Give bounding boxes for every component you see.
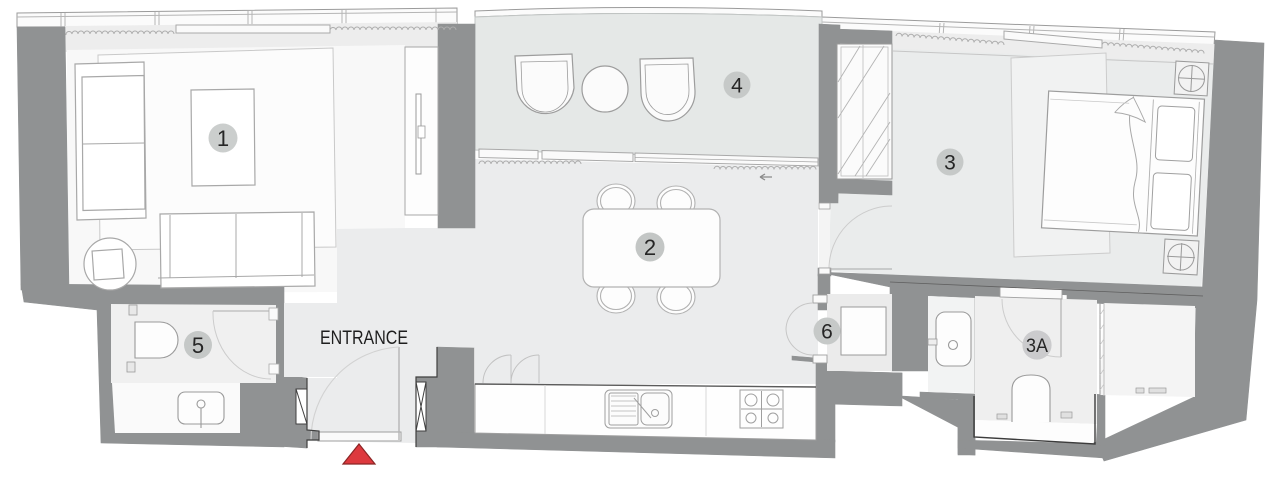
- svg-text:4: 4: [731, 75, 743, 98]
- svg-text:3A: 3A: [1026, 336, 1048, 357]
- svg-text:ENTRANCE: ENTRANCE: [320, 328, 408, 349]
- svg-text:6: 6: [821, 321, 833, 344]
- svg-text:3: 3: [944, 152, 956, 175]
- svg-text:1: 1: [217, 126, 229, 151]
- svg-text:2: 2: [644, 235, 656, 260]
- svg-text:5: 5: [192, 333, 204, 358]
